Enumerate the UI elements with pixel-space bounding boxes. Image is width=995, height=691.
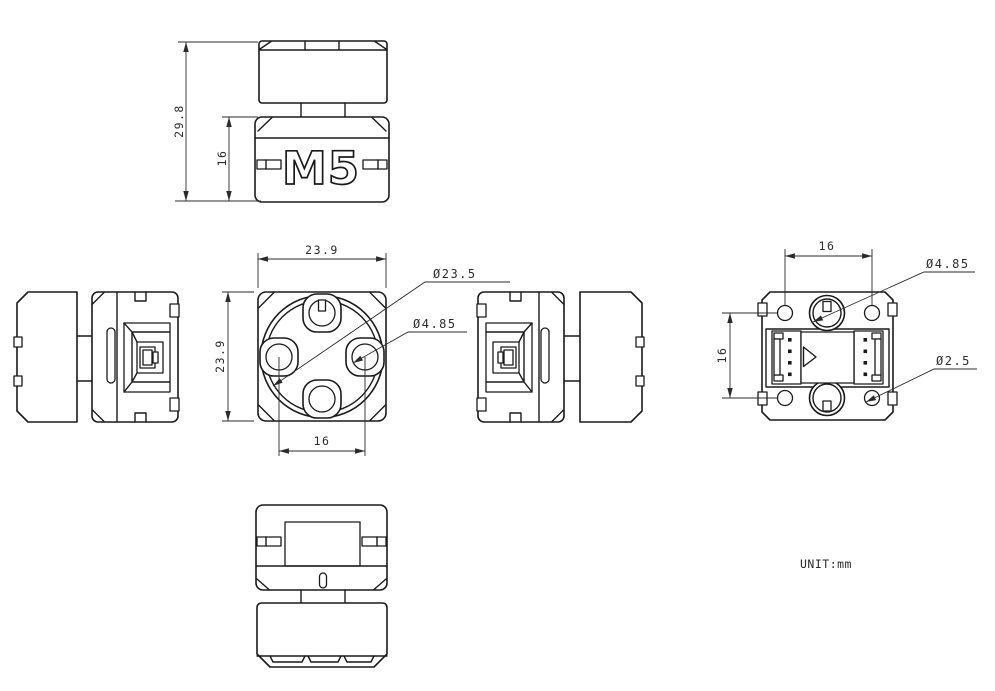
socket-connector-tab xyxy=(153,352,158,363)
left-screw-slot-top xyxy=(170,304,179,317)
top-hole-spacing-text: 16 xyxy=(314,434,331,448)
small-hole-tr xyxy=(865,306,880,321)
bottom-boss-top-notch xyxy=(823,302,831,312)
bottom-boss-top xyxy=(810,296,845,331)
top-height-text: 23.9 xyxy=(213,339,227,373)
left-mount-notch-1 xyxy=(14,337,22,347)
front-left-slot xyxy=(257,160,281,169)
small-hole-bl xyxy=(778,391,793,406)
bottom-edge-notch-tr xyxy=(888,303,897,316)
grove-pin xyxy=(864,338,868,342)
grove-pin xyxy=(788,373,792,377)
front-dimensions: 29.8 16 xyxy=(172,42,261,201)
right-mount-notch-1 xyxy=(636,337,644,347)
socket-connector-inner xyxy=(504,350,513,365)
bottom-edge-notch-br xyxy=(888,392,897,405)
left-grove-socket xyxy=(124,323,170,392)
top-hole-key-notch xyxy=(319,300,326,311)
back-view xyxy=(256,505,387,667)
back-left-slot xyxy=(257,537,281,546)
grove-pin xyxy=(864,373,868,377)
right-side-view xyxy=(477,292,644,422)
grove-port-left xyxy=(772,331,801,384)
small-hole-tl xyxy=(778,306,793,321)
back-right-slot xyxy=(362,537,386,546)
grove-port-step-top xyxy=(872,333,881,339)
top-outer-diameter-text: Ø23.5 xyxy=(433,267,477,281)
left-mount-notch-2 xyxy=(14,376,22,386)
bottom-face-view: 16 16 Ø4.85 Ø2.5 xyxy=(715,239,977,420)
front-overall-height-text: 29.8 xyxy=(172,104,186,138)
right-side-slot-bar xyxy=(541,328,549,383)
right-screw-slot-top xyxy=(477,304,486,317)
left-neck xyxy=(77,336,92,381)
bottom-hole-spacing-h-text: 16 xyxy=(819,239,836,253)
grove-pin xyxy=(864,350,868,354)
small-hole-br xyxy=(865,391,880,406)
socket-connector-inner xyxy=(143,350,152,365)
back-key-slot xyxy=(320,573,327,588)
left-mount-block xyxy=(17,292,77,422)
grove-port-latch xyxy=(875,339,881,375)
engineering-drawing: M5 29.8 16 23.9 2 xyxy=(0,0,995,691)
top-view: 23.9 23.9 16 Ø23.5 Ø4.85 xyxy=(213,243,510,456)
right-grove-socket xyxy=(486,323,532,392)
front-neck xyxy=(301,103,345,117)
front-extension-lines xyxy=(175,42,261,201)
back-mount-block xyxy=(257,603,387,667)
m5-logo: M5 xyxy=(282,142,360,195)
bottom-edge-notch-bl xyxy=(758,392,767,405)
grove-pin xyxy=(788,350,792,354)
grove-port-step-bottom xyxy=(774,375,783,381)
bottom-edge-notch-tl xyxy=(758,303,767,316)
grove-port-latch xyxy=(774,339,780,375)
back-window xyxy=(285,522,360,566)
unit-label: UNIT:mm xyxy=(800,557,852,571)
grove-pin xyxy=(788,338,792,342)
right-screw-slot-bottom xyxy=(477,398,486,411)
grove-pin xyxy=(788,361,792,365)
right-mount-block xyxy=(580,292,642,422)
right-neck xyxy=(564,336,580,381)
back-neck xyxy=(301,590,345,603)
grove-port-step-bottom xyxy=(872,375,881,381)
front-body-height-text: 16 xyxy=(215,150,229,167)
bottom-small-hole-text: Ø2.5 xyxy=(936,354,971,368)
bottom-hole-diameter-text: Ø4.85 xyxy=(926,257,970,271)
left-side-slot-bar xyxy=(107,328,115,383)
top-width-text: 23.9 xyxy=(305,243,339,257)
socket-connector-tab xyxy=(498,352,503,363)
left-side-view xyxy=(14,292,179,422)
front-right-slot xyxy=(363,160,387,169)
drawing-page: M5 29.8 16 23.9 2 xyxy=(0,0,995,691)
grove-pin xyxy=(864,361,868,365)
top-hole-bottom xyxy=(309,386,335,412)
bottom-boss-bottom-notch xyxy=(823,401,831,411)
left-screw-slot-bottom xyxy=(170,398,179,411)
grove-port-right xyxy=(854,331,883,384)
front-view: M5 29.8 16 xyxy=(172,41,389,202)
bottom-center-block xyxy=(801,332,854,383)
top-hole-diameter-text: Ø4.85 xyxy=(413,317,457,331)
grove-port-step-top xyxy=(774,333,783,339)
right-mount-notch-2 xyxy=(636,376,644,386)
bottom-hole-spacing-v-text: 16 xyxy=(715,347,729,364)
